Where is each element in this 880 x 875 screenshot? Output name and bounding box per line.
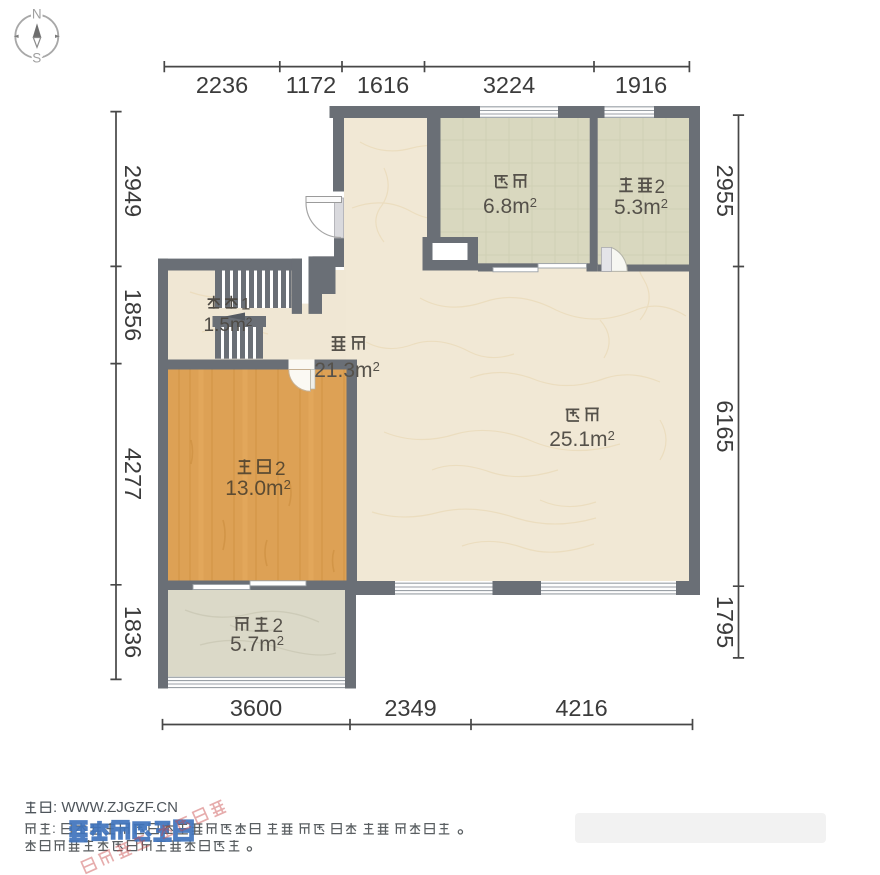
svg-text:3600: 3600 [230,695,282,721]
svg-text:4216: 4216 [555,695,607,721]
svg-text:5.3m2: 5.3m2 [614,196,668,219]
svg-text:1: 1 [241,295,250,314]
svg-text:2949: 2949 [120,165,146,217]
svg-text:13.0m2: 13.0m2 [225,477,291,500]
svg-text:2955: 2955 [712,165,738,217]
svg-text:1916: 1916 [615,72,667,98]
svg-text:N: N [32,7,42,22]
svg-text:1616: 1616 [357,72,409,98]
svg-text:2: 2 [655,177,666,198]
svg-text::: : [52,820,56,836]
svg-text:21.3m2: 21.3m2 [314,359,380,382]
svg-text:25.1m2: 25.1m2 [549,428,615,451]
svg-text:1172: 1172 [286,72,337,98]
svg-text:5.7m2: 5.7m2 [230,633,284,656]
svg-text:1836: 1836 [120,606,146,658]
svg-text:1856: 1856 [120,289,146,341]
svg-text:6165: 6165 [712,400,738,452]
svg-text:1.5m2: 1.5m2 [204,315,253,336]
svg-text:6.8m2: 6.8m2 [483,195,537,218]
svg-text:4277: 4277 [120,448,146,500]
svg-text:2349: 2349 [384,695,436,721]
svg-text:3224: 3224 [483,72,535,98]
svg-text:1795: 1795 [712,596,738,648]
svg-text:S: S [32,51,41,66]
svg-text:2236: 2236 [196,72,248,98]
svg-text:: WWW.ZJGZF.CN: : WWW.ZJGZF.CN [53,799,178,816]
